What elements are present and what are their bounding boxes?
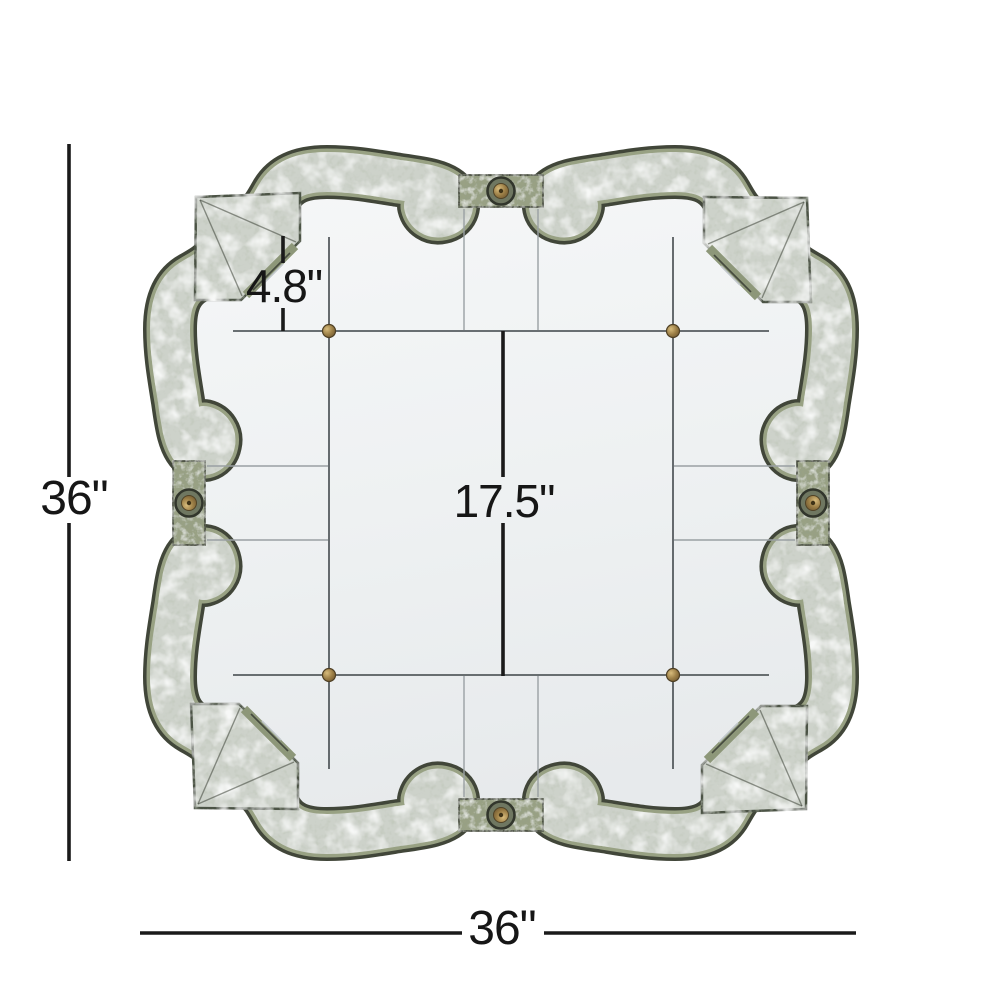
dimension-diagram: 36" 36" 4.8" 17.5" xyxy=(0,0,1000,1000)
center-dimension-label: 17.5" xyxy=(434,477,574,525)
height-dimension-label: 36" xyxy=(14,475,134,523)
top-panel-dimension-label: 4.8" xyxy=(224,262,344,310)
width-dimension-label: 36" xyxy=(442,905,562,953)
rosette-icon xyxy=(488,802,515,829)
rosette-icon xyxy=(176,490,203,517)
rosette-icon xyxy=(800,490,827,517)
rosette-icon xyxy=(488,178,515,205)
